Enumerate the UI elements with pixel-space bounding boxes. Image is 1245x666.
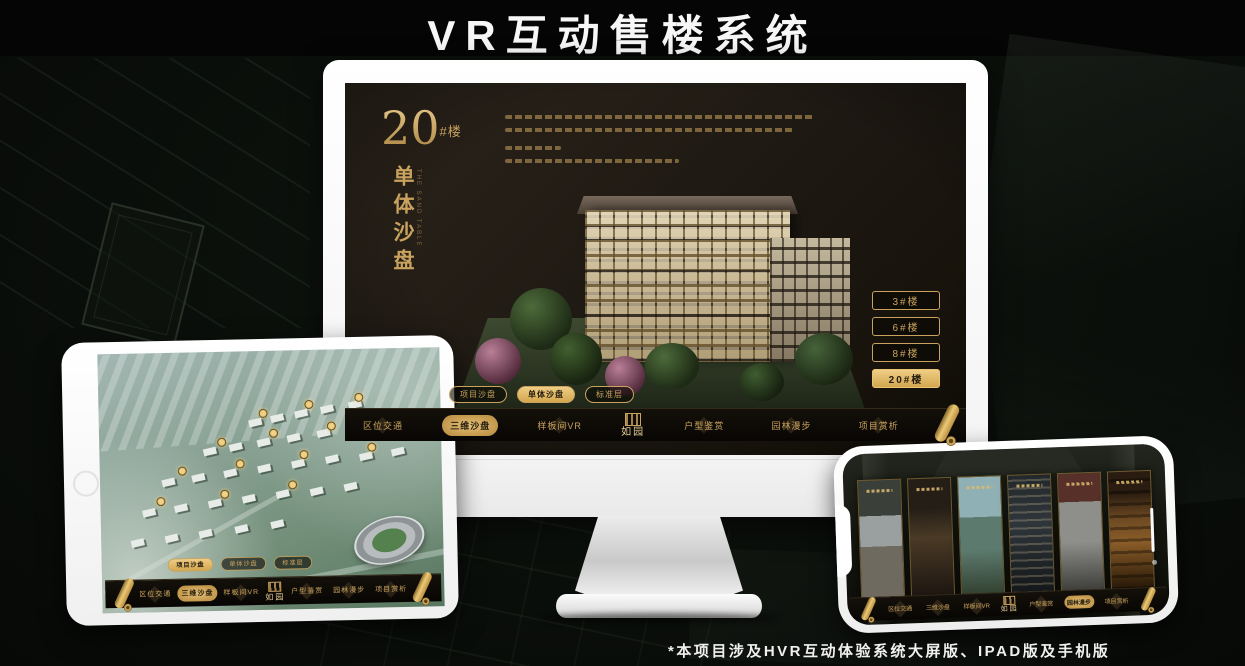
subtab-standard-floor[interactable]: 标准层 [585, 386, 634, 403]
gallery-card-3[interactable] [957, 475, 1005, 596]
building-marker[interactable] [178, 467, 187, 476]
tablet-nav-3d-sandbox[interactable]: 三维沙盘 [177, 584, 217, 601]
building-block [270, 519, 284, 529]
phone-home-indicator[interactable] [1150, 507, 1155, 551]
phone-nav-location-traffic[interactable]: 区位交通 [885, 601, 915, 615]
phone-nav-garden-walk[interactable]: 园林漫步 [1064, 595, 1094, 609]
nav-project-appreciation[interactable]: 项目赏析 [851, 415, 907, 436]
gallery-card-2[interactable] [907, 477, 955, 598]
brand-logo-emblem [625, 413, 641, 426]
tablet-brand-logo-emblem [268, 581, 281, 591]
building-block [229, 442, 243, 452]
tree-blob [795, 333, 853, 385]
brand-logo: 如园 [621, 413, 645, 438]
floor-number: 20 [381, 101, 440, 155]
sub-tab-group: 项目沙盘 单体沙盘 标准层 [449, 386, 634, 403]
tree-pink-blob [475, 338, 521, 384]
tablet-screen: 项目沙盘 单体沙盘 标准层 区位交通 三维沙盘 样板间VR 如园 户型鉴赏 园林… [97, 347, 444, 613]
subtab-single-sandbox[interactable]: 单体沙盘 [517, 386, 575, 403]
building-block [191, 473, 205, 483]
floor-suffix: #楼 [440, 124, 462, 139]
building-block [142, 508, 156, 518]
tablet-device: 项目沙盘 单体沙盘 标准层 区位交通 三维沙盘 样板间VR 如园 户型鉴赏 园林… [61, 335, 459, 626]
floor-button-8[interactable]: 8#楼 [872, 343, 940, 362]
building-marker[interactable] [367, 443, 376, 452]
building-block [174, 503, 188, 513]
tablet-nav-location-traffic[interactable]: 区位交通 [135, 585, 175, 602]
tree-blob [740, 363, 784, 401]
building-block [165, 533, 179, 543]
headline-vertical: 单体沙盘 [387, 165, 417, 277]
building-block [359, 451, 373, 461]
floor-button-20[interactable]: 20#楼 [872, 369, 940, 388]
page-title: VR互动售楼系统 [0, 2, 1245, 63]
tablet-navbar: 区位交通 三维沙盘 样板间VR 如园 户型鉴赏 园林漫步 项目赏析 [105, 573, 442, 608]
gallery-card-1[interactable] [857, 479, 905, 600]
building-block [242, 494, 256, 504]
tablet-subtab-single-sandbox[interactable]: 单体沙盘 [221, 557, 267, 571]
scroll-menu-icon-right[interactable] [1142, 586, 1154, 614]
building-marker[interactable] [220, 490, 229, 499]
phone-nav-3d-sandbox[interactable]: 三维沙盘 [923, 600, 953, 614]
building-block [131, 538, 145, 548]
building-block [257, 438, 271, 448]
building-block [208, 499, 222, 509]
tablet-nav-project-appreciation[interactable]: 项目赏析 [371, 580, 411, 597]
stage: VR互动售楼系统 20#楼 单体沙盘 THE SAND TABLE [0, 0, 1245, 666]
tablet-nav-showroom-vr[interactable]: 样板间VR [219, 583, 263, 600]
phone-camera-dot [1152, 560, 1157, 565]
subtab-project-sandbox[interactable]: 项目沙盘 [449, 386, 507, 403]
background-screenshot-1 [963, 34, 1245, 401]
phone-nav-showroom-vr[interactable]: 样板间VR [960, 599, 993, 613]
tablet-home-button[interactable] [73, 470, 100, 497]
gallery-card-4[interactable] [1007, 473, 1055, 594]
phone-gallery [857, 470, 1155, 600]
phone-nav-unit-gallery[interactable]: 户型鉴赏 [1026, 596, 1056, 610]
building-block [391, 447, 405, 457]
floor-button-6[interactable]: 6#楼 [872, 317, 940, 336]
phone-brand-logo-emblem [1003, 596, 1015, 605]
nav-location-traffic[interactable]: 区位交通 [355, 415, 411, 436]
scroll-menu-icon-right[interactable] [415, 570, 430, 605]
scroll-menu-icon-left[interactable] [862, 596, 874, 624]
building-block [310, 486, 324, 496]
phone-notch [835, 504, 853, 576]
building-block [344, 482, 358, 492]
building-block [286, 433, 300, 443]
headline-vertical-en: THE SAND TABLE [415, 169, 421, 247]
building-block [257, 464, 271, 474]
tablet-subtab-group: 项目沙盘 单体沙盘 标准层 [168, 556, 313, 572]
building-block [234, 524, 248, 534]
building-marker[interactable] [236, 459, 245, 468]
gallery-card-6[interactable] [1107, 470, 1155, 591]
building-block [325, 454, 339, 464]
building-marker[interactable] [288, 480, 297, 489]
phone-nav-project-appreciation[interactable]: 项目赏析 [1101, 594, 1131, 608]
monitor-shadow [540, 613, 780, 623]
building-marker[interactable] [217, 438, 226, 447]
tablet-nav-unit-gallery[interactable]: 户型鉴赏 [287, 582, 327, 599]
building-block [203, 447, 217, 457]
nav-showroom-vr[interactable]: 样板间VR [529, 415, 590, 436]
desktop-navbar: 区位交通 三维沙盘 样板间VR 如园 户型鉴赏 园林漫步 项目赏析 [345, 408, 966, 441]
tablet-brand-logo-text: 如园 [265, 593, 285, 601]
brand-logo-text: 如园 [621, 428, 645, 438]
nav-garden-walk[interactable]: 园林漫步 [764, 415, 820, 436]
floor-headline: 20#楼 [381, 105, 462, 151]
tablet-nav-garden-walk[interactable]: 园林漫步 [329, 581, 369, 598]
tablet-subtab-standard-floor[interactable]: 标准层 [274, 556, 312, 570]
stadium [348, 508, 430, 573]
building-marker[interactable] [299, 450, 308, 459]
scroll-menu-icon-left[interactable] [117, 577, 132, 612]
building-block [291, 459, 305, 469]
building-facade [585, 210, 790, 362]
building-block [161, 478, 175, 488]
building-block [198, 529, 212, 539]
nav-3d-sandbox[interactable]: 三维沙盘 [442, 415, 498, 436]
background-plaque [81, 202, 205, 347]
scroll-menu-icon[interactable] [938, 403, 956, 447]
tablet-subtab-project-sandbox[interactable]: 项目沙盘 [168, 558, 214, 572]
monitor-stand [575, 515, 743, 599]
tree-blob [645, 343, 699, 389]
gallery-card-5[interactable] [1057, 472, 1105, 593]
building-block [276, 489, 290, 499]
background-road-lines [0, 58, 310, 328]
phone-screen: 区位交通 三维沙盘 样板间VR 如园 户型鉴赏 园林漫步 项目赏析 [842, 443, 1170, 625]
phone-device: 区位交通 三维沙盘 样板间VR 如园 户型鉴赏 园林漫步 项目赏析 [833, 435, 1179, 634]
floor-button-group: 3#楼 6#楼 8#楼 20#楼 [872, 291, 940, 388]
building-marker[interactable] [156, 497, 165, 506]
tablet-brand-logo: 如园 [265, 581, 285, 601]
phone-brand-logo: 如园 [1000, 596, 1019, 614]
phone-brand-logo-text: 如园 [1001, 606, 1019, 614]
nav-unit-gallery[interactable]: 户型鉴赏 [676, 415, 732, 436]
tree-blob [550, 333, 602, 385]
footnote-text: *本项目涉及HVR互动体验系统大屏版、IPAD版及手机版 [668, 640, 1110, 661]
building-block [223, 468, 237, 478]
description-text-lines [505, 115, 815, 172]
floor-button-3[interactable]: 3#楼 [872, 291, 940, 310]
